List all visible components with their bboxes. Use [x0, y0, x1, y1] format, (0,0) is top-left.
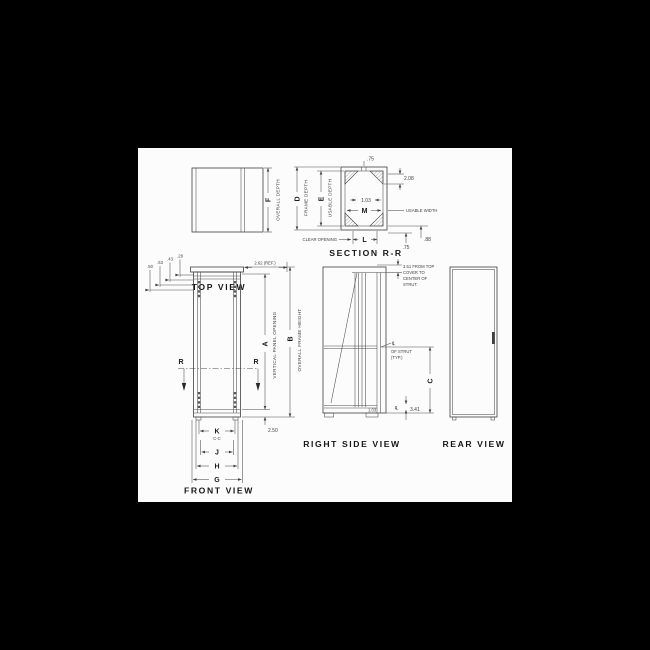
base-height-value: 2.50 — [268, 428, 278, 434]
note-line-3: CENTER OF — [403, 276, 428, 281]
k-note: C-C — [213, 436, 220, 441]
offset-value-4: .28 — [177, 254, 183, 259]
note-line-4: STRUT. — [403, 282, 418, 287]
dim-letter-a: A — [263, 341, 270, 346]
top-strut-width-value: .75 — [367, 157, 374, 163]
dim-letter-m: M — [362, 208, 368, 215]
usable-depth-label: USABLE DEPTH — [328, 179, 333, 218]
dim-letter-d: D — [295, 196, 302, 201]
strut-spacing-value: 1.03 — [361, 198, 371, 204]
bottom-flange-value: .75 — [403, 245, 410, 251]
usable-width-label: USABLE WIDTH — [406, 208, 437, 213]
frame-depth-label: FRAME DEPTH — [304, 180, 309, 216]
drawing-sheet: F OVERALL DEPTH TOP VIEW .75 D — [0, 0, 650, 650]
dim-letter-f: F — [266, 197, 273, 202]
overall-depth-label: OVERALL DEPTH — [276, 179, 281, 221]
rack-engineering-drawing: F OVERALL DEPTH TOP VIEW .75 D — [0, 0, 650, 650]
dim-letter-g: G — [214, 477, 220, 484]
rear-view-title: REAR VIEW — [442, 439, 505, 449]
section-rr-title: SECTION R-R — [329, 248, 402, 258]
strut-note-1: OF STRUT — [391, 349, 412, 354]
front-view-title: FRONT VIEW — [184, 486, 254, 496]
dim-letter-e: E — [319, 196, 326, 201]
offset-value-2: .63 — [157, 260, 163, 265]
right-side-view-title: RIGHT SIDE VIEW — [303, 439, 401, 449]
dim-letter-h: H — [214, 464, 219, 471]
dim-letter-k: K — [214, 429, 219, 436]
clear-opening-label: CLEAR OPENING — [303, 237, 337, 242]
side-bottom-note: 1.03 — [368, 408, 377, 413]
section-marker-right: R — [253, 359, 258, 366]
strut-center-value: 3.41 — [410, 407, 420, 413]
bottom-offset-value: .88 — [424, 237, 431, 243]
note-line-1: 3.51 FROM TOP — [403, 264, 434, 269]
note-line-2: COVER TO — [403, 270, 425, 275]
offset-value-3: .43 — [167, 257, 173, 262]
strut-note-2: (TYP.) — [391, 355, 403, 360]
offset-value-1: .50 — [147, 264, 153, 269]
dim-letter-j: J — [215, 450, 219, 457]
dim-letter-b: B — [288, 336, 295, 341]
right-offset-value: 2.08 — [404, 176, 414, 182]
top-ref-value: 2.62 (REF.) — [254, 261, 276, 266]
section-marker-left: R — [178, 359, 183, 366]
rear-door-handle — [492, 332, 495, 344]
vertical-panel-opening-label: VERTICAL PANEL OPENING — [272, 311, 277, 378]
overall-frame-height-label: OVERALL FRAME HEIGHT — [297, 308, 302, 371]
dim-letter-c: C — [428, 378, 435, 383]
dim-letter-l: L — [362, 237, 367, 244]
